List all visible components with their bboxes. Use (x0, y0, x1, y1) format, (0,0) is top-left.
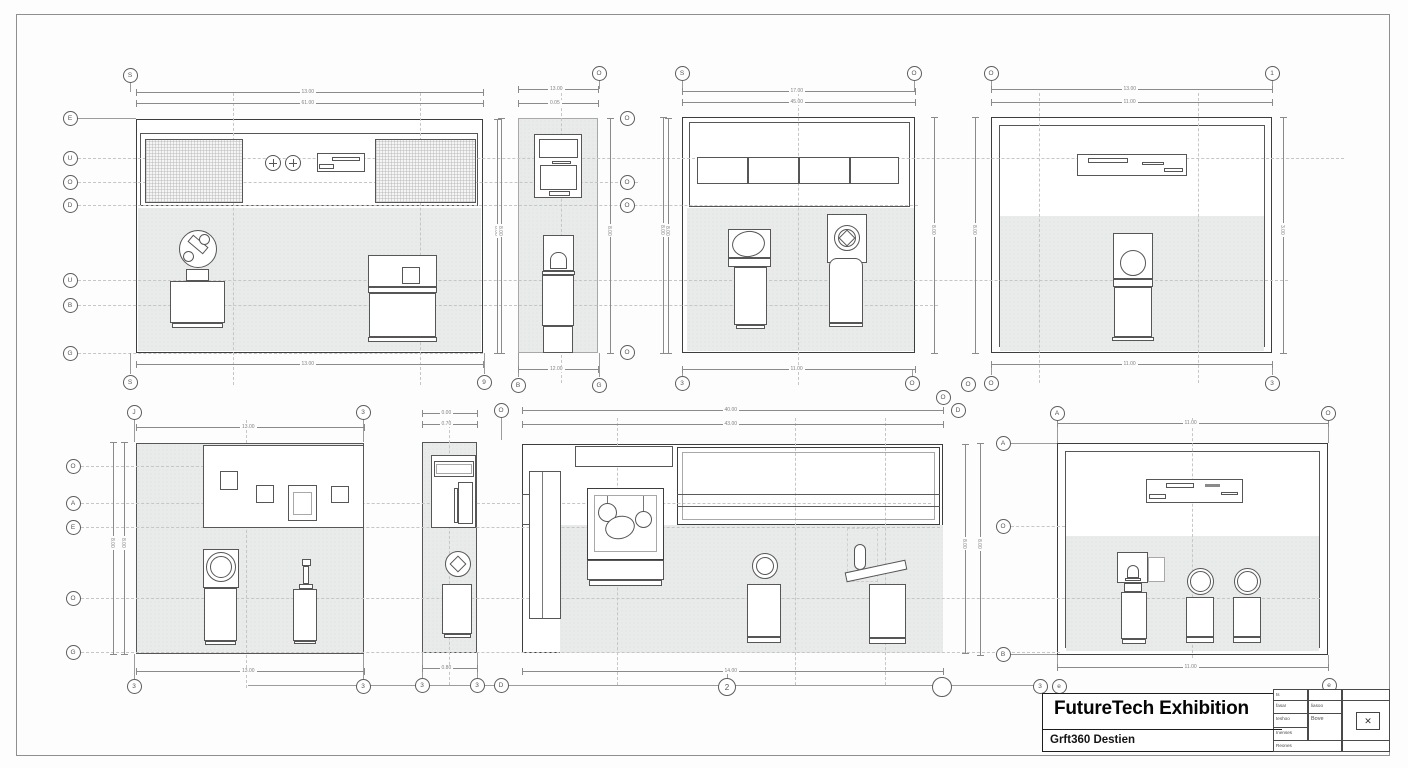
dimension-tick (977, 655, 984, 656)
grid-bubble: E (66, 520, 81, 535)
plinth-g1 (747, 584, 781, 637)
centerline (1011, 526, 1065, 527)
signage-bar (1205, 484, 1220, 487)
centerline (233, 93, 234, 385)
grid-bubble: 3 (356, 679, 371, 694)
section-marker-icon (285, 155, 301, 171)
gallery-artwork-inner (293, 492, 312, 515)
leader-line (78, 118, 136, 119)
leader-line (599, 81, 600, 89)
dimension-label: 13.00 (1122, 86, 1139, 92)
drawing-sheet: FutureTech Exhibition Grft360 Destien ts… (0, 0, 1408, 768)
grid-bubble: 3 (675, 376, 690, 391)
display-dome (550, 252, 567, 269)
dimension-tick (498, 118, 505, 119)
grid-bubble: O (984, 66, 999, 81)
niche-door (458, 482, 473, 524)
dimension-label: 8.00 (930, 223, 936, 237)
dimension-label: 45.00 (789, 99, 806, 105)
leader-line (501, 418, 502, 440)
signage-tag (1149, 494, 1166, 499)
leader-line (130, 83, 131, 92)
kiosk-body (369, 293, 436, 337)
dimension-label: 8.00 (976, 537, 982, 551)
gallery-frame (256, 485, 274, 503)
leader-line (134, 419, 135, 442)
plinth-h2-base (1186, 637, 1214, 643)
porthole-ring-inner (756, 557, 774, 575)
grid-bubble: O (494, 403, 509, 418)
grid-bubble: A (66, 496, 81, 511)
vitrine-pedestal-base (589, 580, 662, 586)
dimension-tick (962, 653, 969, 654)
dimension-label: 0.00 (440, 410, 454, 416)
plinth-h2 (1186, 597, 1214, 637)
dimension-tick (136, 668, 137, 675)
plinth-h1 (1121, 592, 1147, 639)
dimension-label: 13.00 (240, 668, 257, 674)
bottle-cap (302, 559, 311, 566)
dimension-tick (682, 99, 683, 106)
banner-rail (677, 494, 940, 495)
dimension-tick (598, 100, 599, 107)
dimension-tick (943, 421, 944, 428)
dimension-tick (1328, 664, 1329, 671)
dimension-tick (915, 366, 916, 373)
pedestal-divider-d (1113, 279, 1153, 287)
grid-bubble: D (494, 678, 509, 693)
dimension-tick (1272, 361, 1273, 368)
grid-bubble: O (961, 377, 976, 392)
grid-bubble: 3 (1265, 376, 1280, 391)
dimension-label: 11.00 (1122, 99, 1138, 105)
monitor-upper (539, 139, 578, 158)
centerline (78, 280, 1288, 281)
grid-bubble: G (63, 346, 78, 361)
leader-line (912, 369, 913, 376)
north-arrow-icon: ✕ (1356, 712, 1380, 730)
dimension-label: 13.00 (300, 89, 317, 95)
centerline (81, 652, 1060, 653)
signage-box (317, 153, 365, 172)
niche-door-jamb (454, 488, 458, 523)
monitor-shelf (552, 161, 571, 164)
grid-bubble: O (620, 198, 635, 213)
dimension-tick (598, 86, 599, 93)
dimension-tick (991, 99, 992, 106)
monitor-lower (540, 165, 577, 190)
grid-bubble: O (996, 519, 1011, 534)
grid-bubble: B (63, 298, 78, 313)
leader-line (599, 353, 600, 377)
grid-bubble: U (63, 273, 78, 288)
grid-bubble: D (63, 198, 78, 213)
dimension-label: 8.00 (961, 537, 967, 551)
wall-column-tab (522, 494, 530, 525)
dimension-label: 43.00 (723, 421, 740, 427)
porthole-ring-inner (210, 556, 232, 578)
exhibit-column-base (736, 325, 765, 329)
jar-base (1125, 578, 1141, 581)
plinth-g2-base (869, 638, 906, 644)
dimension-tick (483, 89, 484, 96)
dimension-label: 13.00 (548, 86, 565, 92)
dimension-tick (136, 100, 137, 107)
header-box-g (575, 446, 673, 467)
dimension-label: 3.00 (1279, 223, 1285, 237)
grid-bubble: 3 (415, 678, 430, 693)
dimension-label: 61.00 (300, 100, 317, 106)
dimension-tick (518, 366, 519, 373)
kiosk-base (368, 337, 437, 342)
window-cell (697, 157, 748, 184)
dimension-tick (607, 353, 614, 354)
dimension-label: 8.00 (120, 536, 126, 550)
centerline (1039, 93, 1040, 383)
wall-column-divider (542, 472, 543, 618)
grid-bubble: 3 (470, 678, 485, 693)
wall-column (529, 471, 561, 619)
exhibit-tray-base (728, 258, 771, 267)
robot-arm-joint (199, 234, 210, 245)
vitrine-orb (635, 511, 652, 528)
dimension-tick (931, 353, 938, 354)
grid-bubble: A (1050, 406, 1065, 421)
dimension-tick (915, 88, 916, 95)
dimension-tick (972, 117, 979, 118)
grid-bubble: E (63, 111, 78, 126)
dimension-tick (972, 353, 979, 354)
dimension-tick (121, 654, 128, 655)
dimension-tick (121, 442, 128, 443)
dimension-tick (682, 88, 683, 95)
grid-bubble: U (63, 151, 78, 166)
leader-line (134, 654, 135, 679)
kiosk-cube (402, 267, 420, 284)
dimension-tick (522, 668, 523, 675)
pedestal-body-b (542, 275, 574, 326)
dimension-tick (1272, 99, 1273, 106)
dimension-tick (136, 361, 137, 368)
dimension-tick (477, 665, 478, 672)
jar-dome (1127, 565, 1139, 578)
dimension-label: 12.00 (548, 366, 565, 372)
grid-bubble: S (123, 68, 138, 83)
dimension-tick (607, 118, 614, 119)
grid-bubble: O (936, 390, 951, 405)
dimension-tick (136, 424, 137, 431)
dimension-tick (1328, 420, 1329, 427)
case-side-tab (1148, 557, 1165, 582)
dimension-tick (1057, 420, 1058, 427)
grid-bubble: B (511, 378, 526, 393)
plinth-g2 (869, 584, 906, 638)
grid-bubble: 3 (1033, 679, 1048, 694)
dimension-label: 8.00 (971, 223, 977, 237)
bottle-base (294, 641, 316, 644)
dimension-tick (682, 366, 683, 373)
dimension-label: 8.00 (606, 224, 612, 238)
dimension-tick (364, 668, 365, 675)
robot-pedestal-base (172, 323, 223, 328)
titleblock-cell (1342, 740, 1390, 752)
window-cell (850, 157, 899, 184)
vitrine-pedestal (587, 560, 664, 580)
grid-bubble: e (1052, 679, 1067, 694)
dimension-label: 11.00 (1183, 664, 1199, 670)
signage-bar (1166, 483, 1194, 488)
porthole-pedestal (204, 588, 237, 641)
centerline (1198, 93, 1199, 383)
dimension-tick (422, 421, 423, 428)
monitor-stand (549, 191, 570, 196)
robot-pedestal-neck (186, 269, 209, 281)
grid-bubble: 3 (127, 679, 142, 694)
bottle-neck (303, 566, 309, 584)
project-subtitle: Grft360 Destien (1050, 734, 1135, 746)
dimension-tick (136, 89, 137, 96)
pedestal-base-d (1112, 337, 1154, 341)
titleblock-cell: liasoo (1308, 700, 1342, 714)
window-cell (799, 157, 850, 184)
dimension-tick (522, 407, 523, 414)
signage-box-h (1146, 479, 1243, 503)
dimension-label: 13.00 (300, 361, 317, 367)
dimension-tick (477, 410, 478, 417)
exhibit-column (734, 267, 767, 325)
titleblock-cell: Reones (1273, 740, 1342, 752)
dimension-tick (110, 654, 117, 655)
leader-line (363, 654, 364, 679)
dimension-tick (518, 86, 519, 93)
dimension-tick (498, 353, 505, 354)
grid-bubble: O (1321, 406, 1336, 421)
grid-bubble: G (66, 645, 81, 660)
grid-bubble: 3 (356, 405, 371, 420)
plinth-h3-base (1233, 637, 1261, 643)
dimension-tick (483, 361, 484, 368)
dimension-tick (977, 443, 984, 444)
leader-line (484, 353, 485, 374)
centerline (78, 205, 918, 206)
dimension-tick (1057, 664, 1058, 671)
dimension-tick (962, 444, 969, 445)
grid-bubble: G (592, 378, 607, 393)
porthole-pedestal-base (205, 641, 236, 645)
dimension-tick (483, 100, 484, 107)
centerline (78, 353, 483, 354)
pedestal-base-b (543, 326, 573, 353)
robot-pedestal-box (170, 281, 225, 323)
dimension-tick (518, 100, 519, 107)
dimension-tick (1280, 117, 1287, 118)
dimension-tick (598, 366, 599, 373)
grid-bubble: 2 (718, 678, 736, 696)
jar-riser (1124, 583, 1142, 592)
grid-bubble: O (66, 459, 81, 474)
dimension-label: 0.70 (440, 421, 454, 427)
gallery-frame (331, 486, 349, 503)
grid-bubble: D (951, 403, 966, 418)
grid-bubble: A (996, 436, 1011, 451)
dimension-label: 11.00 (1122, 361, 1138, 367)
leader-line (518, 353, 519, 377)
dimension-tick (660, 117, 667, 118)
signage-tag (1221, 492, 1238, 495)
grid-bubble: O (592, 66, 607, 81)
dimension-label: 11.00 (789, 366, 805, 372)
titleblock-cell: teshoo (1273, 713, 1308, 728)
leader-line (1011, 654, 1057, 655)
centerline (798, 93, 799, 385)
vitrine-hanger (643, 496, 644, 512)
dimension-tick (943, 407, 944, 414)
banner-rail (677, 506, 940, 507)
dimension-tick (660, 353, 667, 354)
dimension-label: 17.00 (789, 88, 806, 94)
signage-tag (1164, 168, 1183, 172)
signage-bar (1088, 158, 1128, 163)
grid-bubble: S (675, 66, 690, 81)
grid-bubble: 9 (477, 375, 492, 390)
dimension-tick (665, 118, 672, 119)
dimension-label: 14.00 (723, 668, 740, 674)
dimension-label: 13.00 (240, 424, 257, 430)
dimension-label: 11.00 (1183, 420, 1199, 426)
dimension-tick (364, 424, 365, 431)
grid-bubble: O (620, 175, 635, 190)
robot-arm-joint (183, 251, 194, 262)
ring-exhibit-inner (1237, 571, 1258, 592)
dimension-tick (494, 119, 501, 120)
titleblock-cell: fasar (1273, 700, 1308, 714)
dimension-tick (931, 117, 938, 118)
grid-bubble: O (620, 345, 635, 360)
grid-bubble: O (905, 376, 920, 391)
grid-bubble (932, 677, 952, 697)
signage-bar (332, 157, 360, 161)
mesh-panel-left (145, 139, 243, 203)
grid-bubble: O (907, 66, 922, 81)
titleblock-cell: Bove (1308, 713, 1342, 741)
mesh-panel-right (375, 139, 476, 203)
dimension-tick (1272, 86, 1273, 93)
plinth-h3 (1233, 597, 1261, 637)
dimension-tick (1280, 353, 1287, 354)
dimension-tick (422, 665, 423, 672)
niche-bar-inner (436, 464, 472, 474)
display-sphere (1120, 250, 1146, 276)
dimension-tick (110, 442, 117, 443)
dimension-tick (477, 421, 478, 428)
grid-bubble: O (984, 376, 999, 391)
dimension-label: 0.80 (440, 665, 454, 671)
dimension-label: 8.00 (659, 223, 665, 237)
plinth-g1-base (747, 637, 781, 643)
dimension-tick (522, 421, 523, 428)
bottle-body (293, 589, 317, 641)
ring-exhibit-inner (1190, 571, 1211, 592)
dimension-label: 40.00 (723, 407, 740, 413)
grid-bubble: 1 (1265, 66, 1280, 81)
grid-bubble: S (123, 375, 138, 390)
grid-bubble: J (127, 405, 142, 420)
dimension-label: 8.00 (497, 224, 503, 238)
project-title: FutureTech Exhibition (1054, 698, 1249, 720)
dimension-tick (991, 86, 992, 93)
dimension-tick (991, 361, 992, 368)
dimension-tick (422, 410, 423, 417)
section-marker-icon (265, 155, 281, 171)
banner-board-inner (682, 452, 935, 520)
dimension-label: 8.00 (109, 536, 115, 550)
grid-bubble: O (620, 111, 635, 126)
dimension-label: 0.05 (548, 100, 562, 106)
capsule-object (854, 544, 866, 570)
grid-bubble: O (66, 591, 81, 606)
dimension-tick (915, 99, 916, 106)
window-cell (748, 157, 799, 184)
plinth-f (442, 584, 472, 634)
signage-tag (319, 164, 334, 169)
plinth-f-base (444, 634, 471, 638)
signage-bar (1142, 162, 1164, 165)
leader-line (130, 353, 131, 374)
title-block-divider (1042, 729, 1282, 730)
emblem-pedestal-base (829, 323, 863, 327)
plinth-h1-base (1122, 639, 1146, 644)
leader-line (1011, 443, 1057, 444)
dimension-tick (943, 668, 944, 675)
emblem-pedestal (829, 258, 863, 323)
pedestal-body-d (1114, 287, 1152, 337)
grid-bubble: O (63, 175, 78, 190)
gallery-frame (220, 471, 238, 490)
grid-bubble: B (996, 647, 1011, 662)
